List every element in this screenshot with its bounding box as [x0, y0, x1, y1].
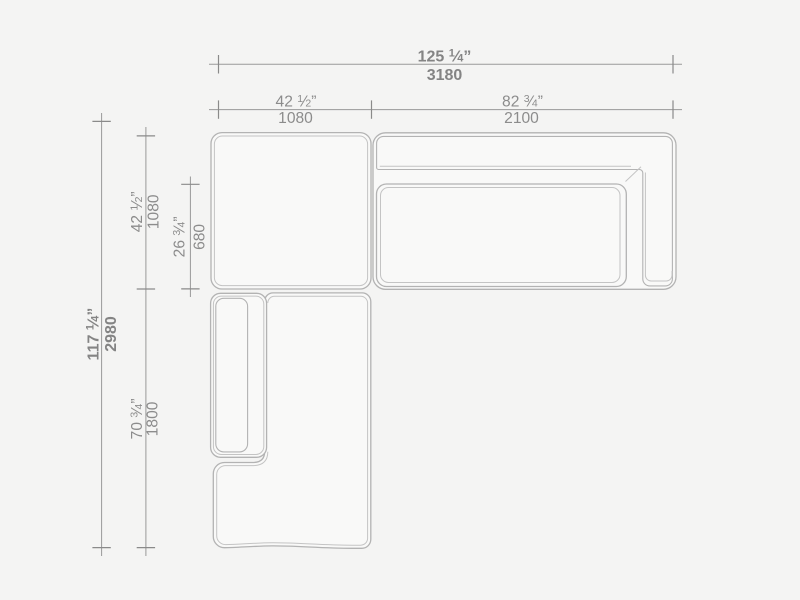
svg-text:42 1⁄2”: 42 1⁄2” [128, 191, 146, 232]
svg-text:125 1⁄4”: 125 1⁄4” [418, 48, 472, 66]
svg-text:1080: 1080 [278, 110, 313, 127]
svg-text:117 1⁄4”: 117 1⁄4” [85, 308, 103, 361]
svg-text:1080: 1080 [145, 194, 162, 229]
svg-text:82 3⁄4”: 82 3⁄4” [502, 93, 543, 111]
svg-text:70 3⁄4”: 70 3⁄4” [128, 398, 146, 439]
svg-text:42 1⁄2”: 42 1⁄2” [276, 93, 317, 111]
svg-text:2100: 2100 [504, 110, 539, 127]
svg-text:680: 680 [191, 224, 208, 250]
svg-text:1800: 1800 [145, 401, 162, 436]
svg-text:26 3⁄4”: 26 3⁄4” [171, 216, 189, 257]
svg-text:3180: 3180 [427, 67, 463, 84]
svg-text:2980: 2980 [103, 316, 120, 352]
